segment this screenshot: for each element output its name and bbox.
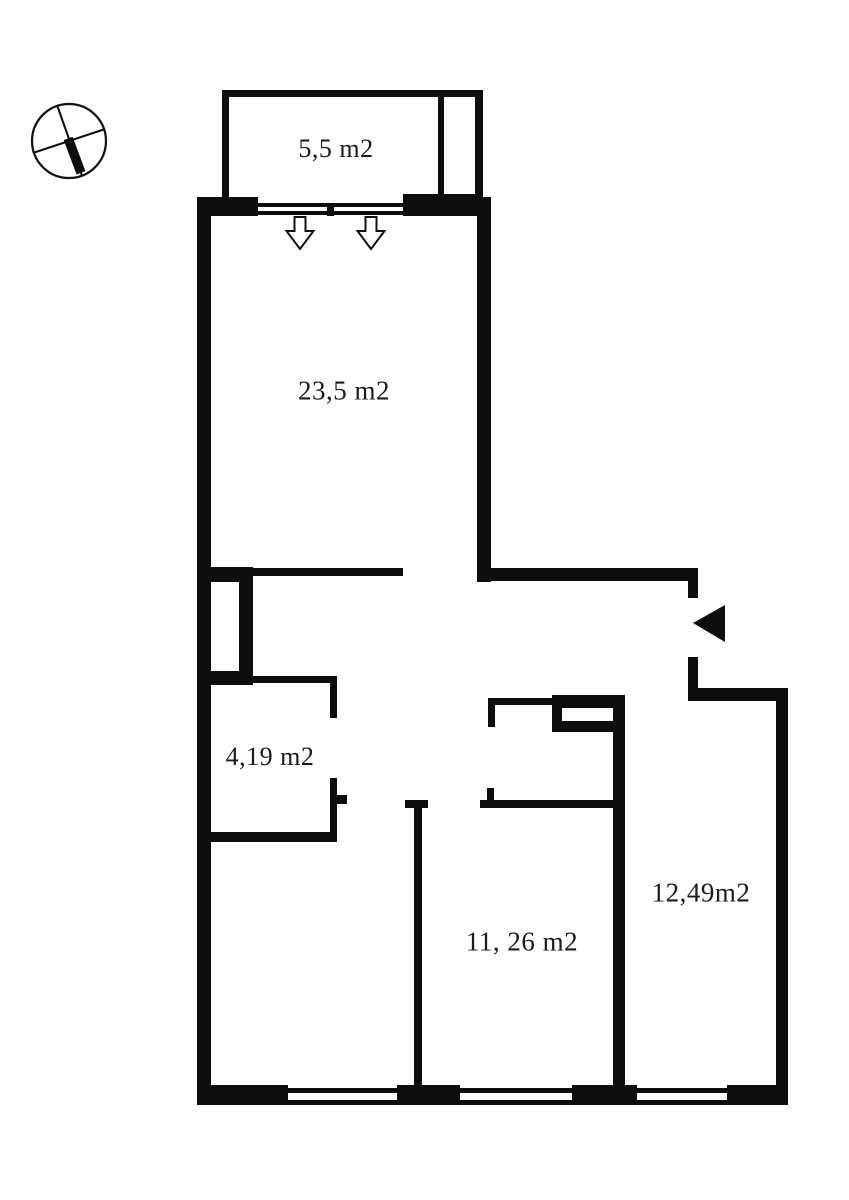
wc-top-wall bbox=[495, 698, 552, 705]
room-label-bedroom: 11, 26 m2 bbox=[466, 927, 578, 958]
right-room-left-wall bbox=[613, 695, 625, 1085]
wc-left-upper-stub bbox=[488, 698, 495, 727]
room-label-storage: 4,19 m2 bbox=[226, 742, 315, 772]
down-arrow-icon bbox=[358, 217, 385, 249]
bottom-window-3-inner bbox=[637, 1100, 727, 1105]
entry-wall-upper-stub bbox=[688, 581, 698, 598]
bottom-wall-block-4 bbox=[727, 1085, 788, 1105]
floor-plan: 5,5 m2 23,5 m2 4,19 m2 11, 26 m2 12,49m2 bbox=[0, 0, 849, 1200]
shaft-right-wall bbox=[239, 582, 253, 685]
bottom-wall-block-2 bbox=[397, 1085, 460, 1105]
bottom-window-3-outer bbox=[637, 1088, 727, 1093]
balcony-divider-wall bbox=[438, 95, 444, 197]
room-label-living-room: 23,5 m2 bbox=[298, 376, 390, 407]
hall-top-wall bbox=[477, 568, 698, 581]
entrance-arrow-icon bbox=[690, 600, 730, 646]
balcony-door-arrows bbox=[280, 214, 392, 256]
storage-bottom-wall bbox=[208, 832, 337, 842]
entry-top-wall bbox=[688, 688, 788, 701]
bottom-window-1-inner bbox=[288, 1100, 397, 1105]
room-label-balcony: 5,5 m2 bbox=[298, 134, 373, 164]
storage-right-wall-upper bbox=[330, 676, 337, 718]
bottom-window-1-outer bbox=[288, 1088, 397, 1093]
down-arrow-icon bbox=[287, 217, 314, 249]
left-exterior-wall bbox=[197, 197, 211, 1105]
hall-wall-thick bbox=[197, 567, 253, 582]
bottom-window-2-outer bbox=[460, 1088, 572, 1093]
balcony-right-wall bbox=[475, 90, 483, 197]
bedroom-left-wall bbox=[414, 808, 422, 1085]
storage-door-jamb bbox=[337, 795, 347, 804]
duct-block-notch bbox=[562, 708, 613, 721]
bedroom-door-jamb bbox=[405, 800, 428, 808]
top-wall-right-block bbox=[403, 194, 483, 216]
bottom-window-2-inner bbox=[460, 1100, 572, 1105]
bottom-wall-block-3 bbox=[572, 1085, 637, 1105]
room-label-right-room: 12,49m2 bbox=[652, 878, 751, 909]
storage-top-wall bbox=[253, 676, 337, 683]
hall-wall-thin bbox=[253, 568, 403, 576]
balcony-left-wall bbox=[222, 90, 229, 197]
right-exterior-wall bbox=[776, 688, 788, 1105]
bottom-wall-block-1 bbox=[197, 1085, 288, 1105]
compass-icon bbox=[26, 98, 112, 184]
living-right-wall bbox=[477, 197, 491, 582]
shaft-bottom-wall bbox=[197, 671, 253, 685]
wc-bottom-wall bbox=[480, 800, 613, 808]
